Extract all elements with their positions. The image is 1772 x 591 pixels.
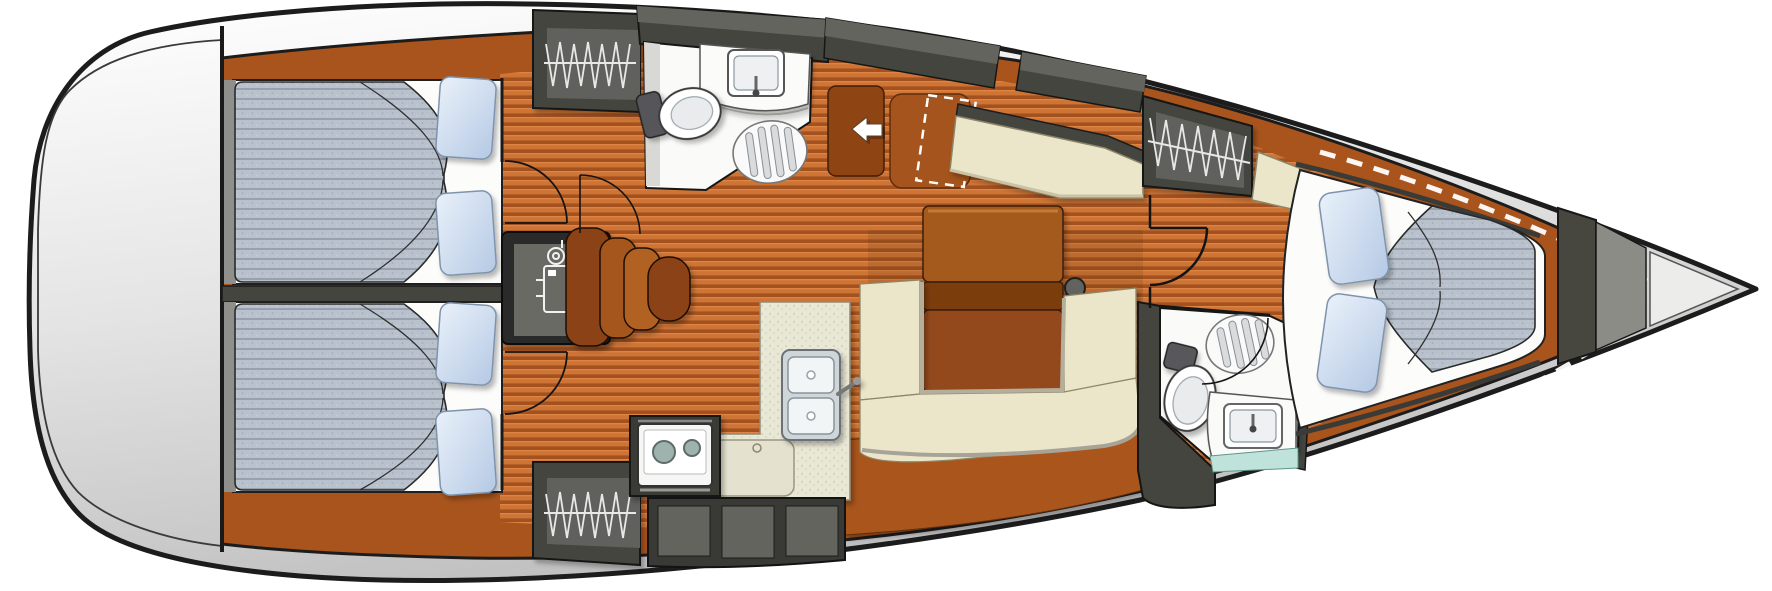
- engine-detail: [548, 270, 556, 276]
- table-folding-leaf: [923, 282, 1063, 310]
- galley-stove: [630, 416, 720, 496]
- sink-drain-1: [807, 371, 815, 379]
- table-top-panel: [923, 206, 1063, 282]
- mattress-starboard: [235, 304, 447, 490]
- table-lower-panel: [923, 310, 1063, 392]
- faucet-base: [753, 90, 760, 97]
- locker-panel: [722, 506, 774, 558]
- settee-right-bench: [1064, 288, 1136, 392]
- stove-burner-small: [684, 440, 700, 456]
- hanging-locker-aft-port: [533, 10, 640, 112]
- faucet-base: [1250, 426, 1257, 433]
- step-4: [648, 257, 690, 321]
- pillow: [435, 190, 497, 276]
- pillow: [435, 408, 497, 496]
- floor-plan-canvas: [0, 0, 1772, 591]
- locker-panel: [658, 506, 710, 556]
- boat-floor-plan: [0, 0, 1772, 591]
- aft-cabin-starboard: [224, 302, 502, 496]
- mattress-port: [235, 82, 447, 282]
- aft-cabin-divider-wall: [222, 286, 505, 302]
- saloon-table: [923, 206, 1063, 392]
- pillow: [1318, 186, 1390, 285]
- stove-burner-large: [653, 441, 675, 463]
- sink-faucet-knob: [853, 377, 861, 385]
- aft-cabin-port: [224, 76, 502, 284]
- pillow: [1316, 292, 1388, 393]
- bow-bulkhead: [1558, 208, 1596, 364]
- settee-left-bench: [860, 280, 920, 400]
- hanging-locker-aft-starboard: [533, 462, 640, 565]
- sink-drain-2: [807, 412, 815, 420]
- pillow: [435, 302, 496, 386]
- fwd-head-sink: [1207, 392, 1296, 458]
- pillow: [435, 76, 496, 160]
- locker-panel: [786, 506, 838, 556]
